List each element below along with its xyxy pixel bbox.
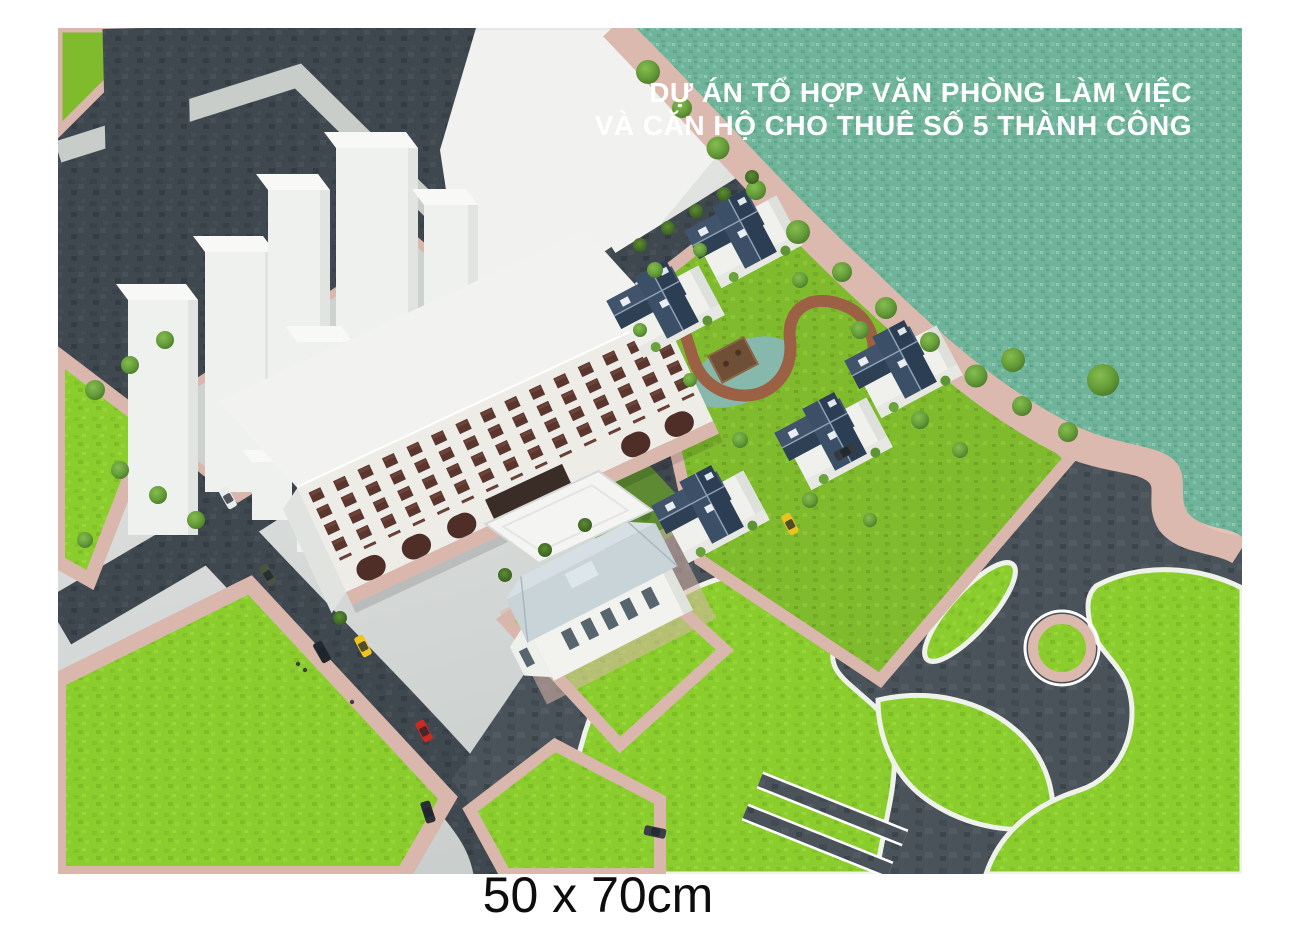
size-caption: 50 x 70cm bbox=[483, 866, 714, 924]
poster: DỰ ÁN TỔ HỢP VĂN PHÒNG LÀM VIỆC VÀ CĂN H… bbox=[0, 0, 1299, 945]
project-title-line2: VÀ CĂN HỘ CHO THUÊ SỐ 5 THÀNH CÔNG bbox=[595, 109, 1192, 142]
park-circle bbox=[1033, 619, 1091, 677]
project-title: DỰ ÁN TỔ HỢP VĂN PHÒNG LÀM VIỆC VÀ CĂN H… bbox=[595, 76, 1192, 142]
project-title-line1: DỰ ÁN TỔ HỢP VĂN PHÒNG LÀM VIỆC bbox=[595, 76, 1192, 109]
